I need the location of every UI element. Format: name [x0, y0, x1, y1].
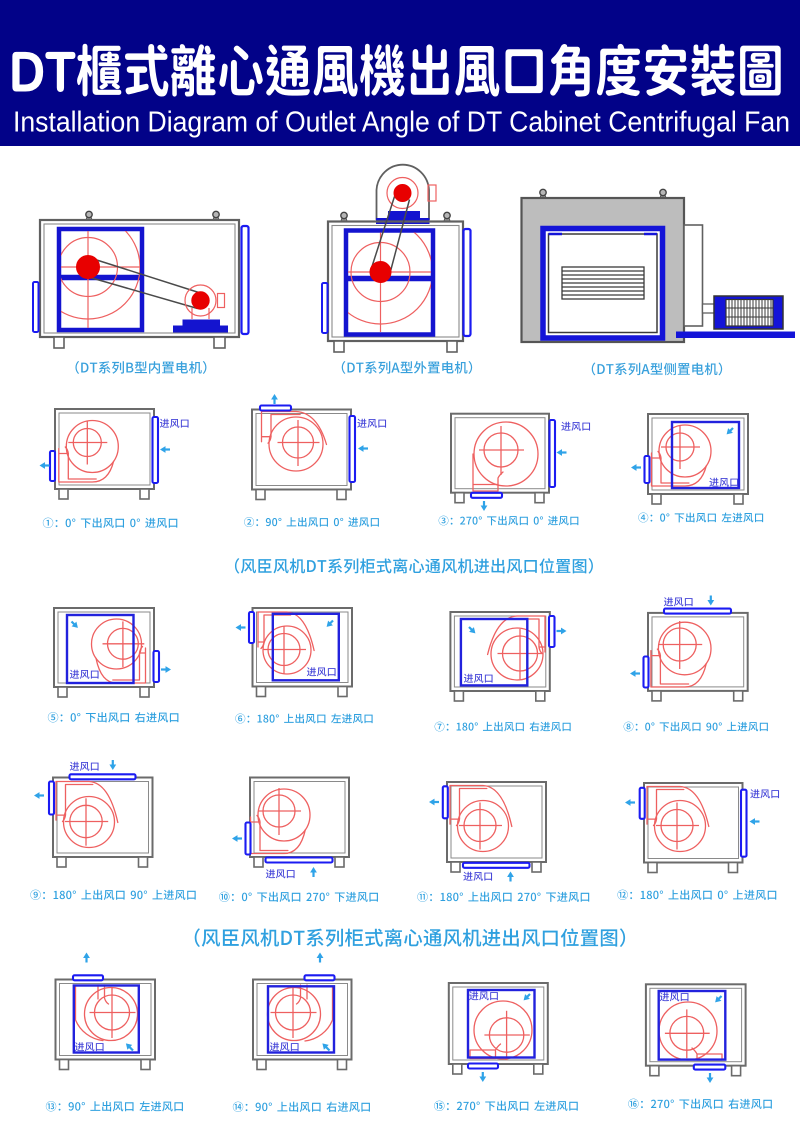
- svg-text:Installation Diagram of Outlet: Installation Diagram of Outlet Angle of …: [13, 107, 790, 139]
